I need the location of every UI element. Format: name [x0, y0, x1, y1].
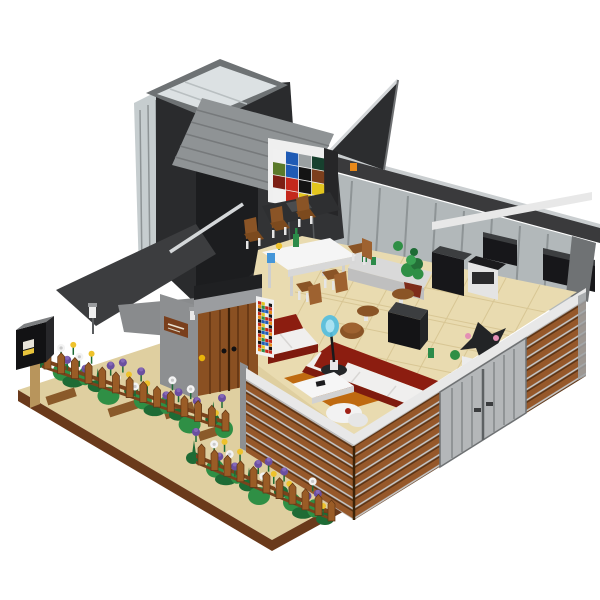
- mailbox-post: [30, 362, 40, 408]
- mosaic-art: [256, 296, 274, 358]
- counter-plant: [393, 241, 403, 251]
- yellow-flower: [276, 243, 282, 249]
- slat-end-caps: [578, 292, 586, 380]
- blue-cup: [267, 253, 275, 263]
- green-bottle: [293, 234, 299, 247]
- metal-door-handle: [486, 402, 493, 406]
- door-handle: [222, 349, 227, 354]
- scene-canvas: [0, 0, 600, 600]
- floor-bottle: [428, 348, 434, 358]
- door-handle: [232, 347, 237, 352]
- bird: [350, 163, 357, 171]
- yellow-knob: [199, 355, 205, 361]
- metal-door-handle: [474, 408, 481, 412]
- lego-house-product-photo: [0, 0, 600, 600]
- media-box: [388, 302, 428, 350]
